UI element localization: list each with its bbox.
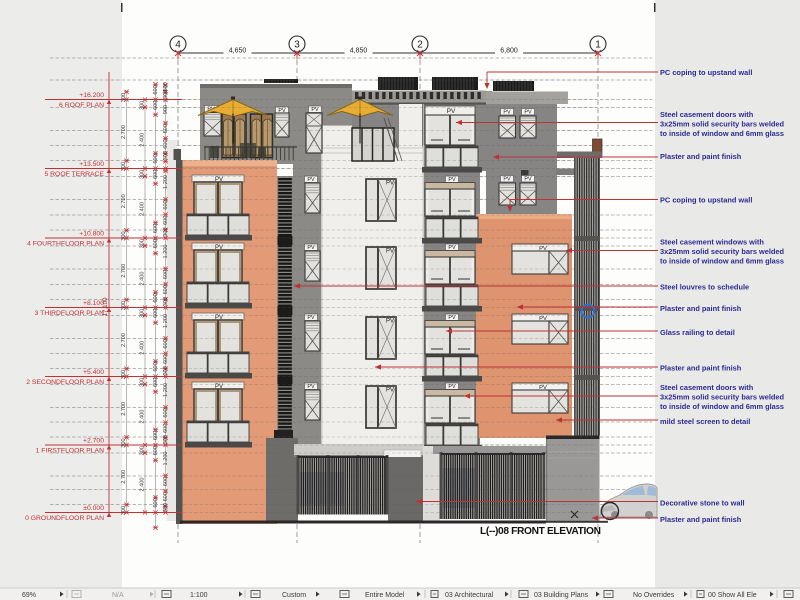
svg-text:600: 600 <box>163 355 169 364</box>
svg-text:+13.500: +13.500 <box>79 161 104 168</box>
svg-text:Steel casement doors with: Steel casement doors with <box>660 383 754 392</box>
svg-text:17,100: 17,100 <box>102 297 109 316</box>
svg-text:300: 300 <box>163 90 169 99</box>
svg-text:300: 300 <box>163 297 169 306</box>
svg-text:+5.400: +5.400 <box>83 369 104 376</box>
svg-text:PV: PV <box>386 388 394 394</box>
svg-text:6 ROOF PLAN: 6 ROOF PLAN <box>59 102 104 109</box>
svg-text:+16.200: +16.200 <box>79 92 104 99</box>
svg-text:Entire Model: Entire Model <box>365 592 405 599</box>
svg-text:to inside of window and 6mm gl: to inside of window and 6mm glass <box>660 257 784 266</box>
svg-text:PV: PV <box>447 108 456 115</box>
svg-text:300: 300 <box>121 506 127 515</box>
svg-text:3: 3 <box>294 40 300 51</box>
svg-text:2.700: 2.700 <box>121 264 127 278</box>
svg-text:PV: PV <box>307 384 315 390</box>
svg-text:Plaster and paint finish: Plaster and paint finish <box>660 364 742 373</box>
svg-text:600: 600 <box>163 339 169 348</box>
svg-text:300: 300 <box>121 301 127 310</box>
svg-text:00 Show All Ele: 00 Show All Ele <box>708 592 757 599</box>
svg-text:±0.000: ±0.000 <box>83 505 104 512</box>
svg-text:600: 600 <box>153 224 159 233</box>
svg-text:03 Architectural: 03 Architectural <box>445 592 494 599</box>
svg-text:Steel casement windows with: Steel casement windows with <box>660 238 764 247</box>
svg-text:600: 600 <box>163 424 169 433</box>
svg-text:300: 300 <box>121 93 127 102</box>
svg-text:600: 600 <box>153 498 159 507</box>
svg-text:4 FOURTHFLOOR PLAN: 4 FOURTHFLOOR PLAN <box>27 241 104 248</box>
svg-text:1: 1 <box>595 40 601 51</box>
svg-text:3x25mm solid security bars wel: 3x25mm solid security bars welded <box>660 393 785 402</box>
svg-text:1.200: 1.200 <box>163 451 169 465</box>
svg-text:2.400: 2.400 <box>140 133 146 147</box>
svg-text:600: 600 <box>153 85 159 94</box>
svg-text:2: 2 <box>417 40 423 51</box>
svg-text:3x25mm solid security bars wel: 3x25mm solid security bars welded <box>660 247 785 256</box>
svg-text:2.700: 2.700 <box>121 194 127 208</box>
svg-text:300: 300 <box>140 239 146 248</box>
svg-text:2.700: 2.700 <box>121 470 127 484</box>
svg-text:600: 600 <box>153 239 159 248</box>
svg-text:1 FIRSTFLOOR PLAN: 1 FIRSTFLOOR PLAN <box>36 448 104 455</box>
svg-text:2.400: 2.400 <box>140 410 146 424</box>
svg-text:PC coping to upstand wall: PC coping to upstand wall <box>660 196 752 205</box>
svg-text:600: 600 <box>163 124 169 133</box>
svg-text:600: 600 <box>153 431 159 440</box>
svg-text:300: 300 <box>121 162 127 171</box>
svg-text:PV: PV <box>503 177 511 183</box>
svg-text:300: 300 <box>121 231 127 240</box>
svg-text:600: 600 <box>153 154 159 163</box>
svg-text:to inside of window and 6mm gl: to inside of window and 6mm glass <box>660 129 784 138</box>
svg-text:Steel casement doors with: Steel casement doors with <box>660 110 754 119</box>
svg-text:+10.800: +10.800 <box>79 231 104 238</box>
svg-text:1.200: 1.200 <box>163 244 169 258</box>
svg-text:600: 600 <box>153 446 159 455</box>
svg-text:600: 600 <box>153 170 159 179</box>
svg-text:PV: PV <box>386 181 394 187</box>
svg-text:5 ROOF TERRACE: 5 ROOF TERRACE <box>44 171 104 178</box>
svg-text:Plaster and paint finish: Plaster and paint finish <box>660 304 742 313</box>
svg-text:300: 300 <box>121 370 127 379</box>
svg-text:300: 300 <box>140 101 146 110</box>
svg-text:300: 300 <box>140 309 146 318</box>
svg-text:Plaster and paint finish: Plaster and paint finish <box>660 515 742 524</box>
svg-text:L(--)08 FRONT ELEVATION: L(--)08 FRONT ELEVATION <box>480 526 601 537</box>
svg-text:600: 600 <box>163 216 169 225</box>
svg-text:4,650: 4,650 <box>229 48 247 55</box>
svg-text:PV: PV <box>386 249 394 255</box>
svg-text:600: 600 <box>163 270 169 279</box>
svg-text:2.400: 2.400 <box>140 272 146 286</box>
svg-text:PV: PV <box>503 110 511 116</box>
svg-text:1.200: 1.200 <box>163 383 169 397</box>
svg-text:No Overrides: No Overrides <box>633 592 675 599</box>
svg-text:3 THIRDFLOOR PLAN: 3 THIRDFLOOR PLAN <box>35 310 104 317</box>
svg-text:600: 600 <box>153 378 159 387</box>
svg-text:PV: PV <box>524 110 532 116</box>
svg-text:03 Building Plans: 03 Building Plans <box>534 592 589 599</box>
svg-text:Plaster and paint finish: Plaster and paint finish <box>660 152 742 161</box>
svg-text:300: 300 <box>163 227 169 236</box>
svg-text:Custom: Custom <box>282 592 306 599</box>
svg-text:600: 600 <box>163 477 169 486</box>
svg-text:300: 300 <box>163 151 169 160</box>
svg-text:2.700: 2.700 <box>121 402 127 416</box>
svg-text:mild steel screen to detail: mild steel screen to detail <box>660 417 750 426</box>
svg-text:PV: PV <box>386 319 394 325</box>
svg-text:1.200: 1.200 <box>163 175 169 189</box>
svg-text:Steel louvres to schedule: Steel louvres to schedule <box>660 283 749 292</box>
svg-text:1.200: 1.200 <box>163 314 169 328</box>
svg-text:600: 600 <box>153 293 159 302</box>
svg-text:600: 600 <box>163 285 169 294</box>
svg-text:2.400: 2.400 <box>140 202 146 216</box>
svg-text:N/A: N/A <box>112 592 124 599</box>
svg-text:300: 300 <box>163 503 169 512</box>
svg-text:600: 600 <box>163 200 169 209</box>
svg-text:4: 4 <box>175 40 181 51</box>
svg-text:300: 300 <box>163 366 169 375</box>
svg-text:2.700: 2.700 <box>121 333 127 347</box>
svg-text:300: 300 <box>140 378 146 387</box>
svg-text:4,850: 4,850 <box>350 48 368 55</box>
svg-text:PV: PV <box>307 315 315 321</box>
svg-text:600: 600 <box>153 101 159 110</box>
svg-text:300: 300 <box>140 170 146 179</box>
svg-text:2.400: 2.400 <box>140 341 146 355</box>
svg-text:PV: PV <box>311 107 319 113</box>
svg-text:PV: PV <box>524 177 532 183</box>
svg-text:300: 300 <box>140 446 146 455</box>
svg-text:69%: 69% <box>22 592 36 599</box>
svg-text:PC coping to upstand wall: PC coping to upstand wall <box>660 68 752 77</box>
svg-text:300: 300 <box>121 438 127 447</box>
svg-text:Glass railing to detail: Glass railing to detail <box>660 328 735 337</box>
svg-text:2.700: 2.700 <box>121 125 127 139</box>
svg-text:6,800: 6,800 <box>500 48 518 55</box>
svg-text:Decorative stone to wall: Decorative stone to wall <box>660 499 745 508</box>
svg-text:600: 600 <box>163 408 169 417</box>
svg-text:600: 600 <box>153 309 159 318</box>
svg-text:900: 900 <box>163 105 169 114</box>
svg-text:300: 300 <box>163 435 169 444</box>
svg-text:600: 600 <box>163 139 169 148</box>
svg-text:600: 600 <box>163 492 169 501</box>
svg-text:3x25mm solid security bars wel: 3x25mm solid security bars welded <box>660 120 785 129</box>
svg-text:2.400: 2.400 <box>140 478 146 492</box>
svg-text:1:100: 1:100 <box>190 592 208 599</box>
svg-text:+2.700: +2.700 <box>83 438 104 445</box>
svg-text:0 GROUNDFLOOR PLAN: 0 GROUNDFLOOR PLAN <box>25 515 104 522</box>
svg-text:to inside of window and 6mm gl: to inside of window and 6mm glass <box>660 402 784 411</box>
svg-text:600: 600 <box>153 362 159 371</box>
svg-text:PV: PV <box>307 177 315 183</box>
svg-text:2 SECONDFLOOR PLAN: 2 SECONDFLOOR PLAN <box>26 379 104 386</box>
